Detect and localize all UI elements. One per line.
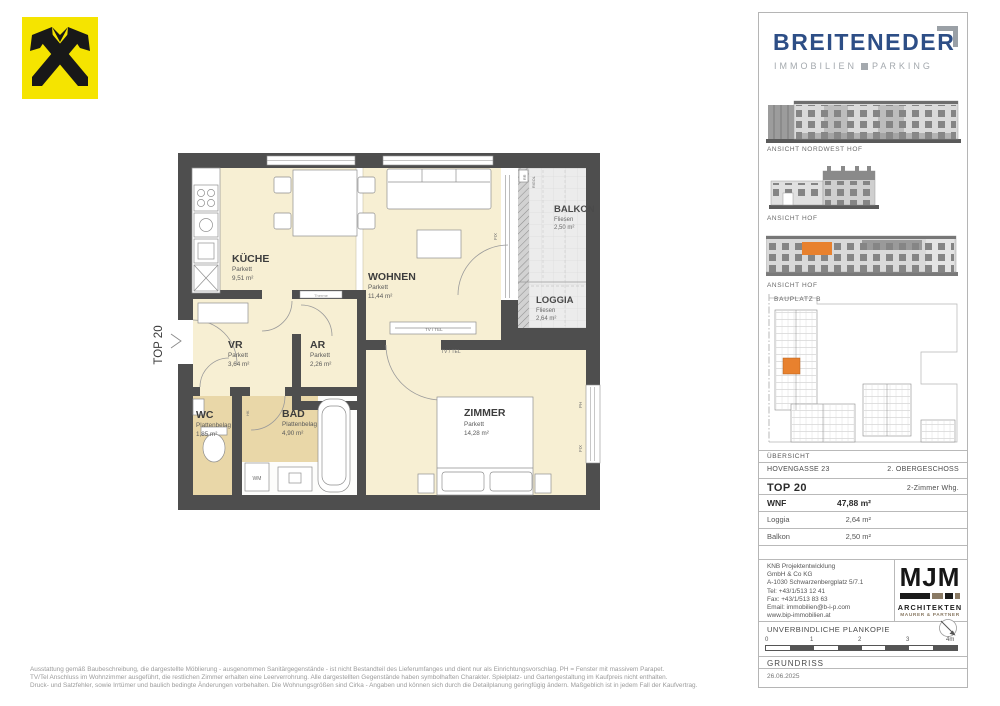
raiffeisen-logo [22,17,98,99]
svg-text:14,28 m²: 14,28 m² [464,430,489,437]
svg-text:Parkett: Parkett [232,266,252,273]
contact-line: Fax: +43/1/513 83 63 [767,596,863,604]
divider [759,545,967,546]
square-separator-icon [861,63,868,70]
svg-text:Parkett: Parkett [368,284,388,291]
divider [759,511,967,512]
svg-text:Plattenbelag: Plattenbelag [282,421,318,428]
divider [759,478,967,479]
svg-text:4,90 m²: 4,90 m² [282,430,303,437]
elevation-label: ANSICHT NORDWEST HOF [767,146,863,153]
svg-text:BALKON: BALKON [554,204,595,215]
svg-text:LOGGIA: LOGGIA [536,295,574,306]
tv-tel-label: TV / TEL [425,327,443,332]
nightstand [535,474,551,493]
svg-text:WC: WC [196,409,214,421]
area-row-value: 2,50 m² [799,532,871,541]
svg-text:ZIMMER: ZIMMER [464,407,506,419]
area-row-label: Balkon [767,532,790,541]
mjm-logo-bar-icon [900,593,960,600]
brand-tagline: IMMOBILIEN PARKING [774,61,933,71]
divider [759,450,967,451]
tv-tel-label: TV / TEL [441,349,461,355]
svg-text:Plattenbelag: Plattenbelag [196,422,232,429]
svg-text:2,50 m²: 2,50 m² [554,225,574,231]
contact-line: Email: immobilien@b-i-p.com [767,604,863,612]
developer-contact: KNB Projektentwicklung GmbH & Co KG A-10… [767,563,863,620]
area-row-label: Loggia [767,515,790,524]
svg-text:11,44 m²: 11,44 m² [368,293,392,300]
sofa [387,169,491,209]
stove-icon [194,185,218,211]
elevation-label: ANSICHT HOF [767,215,818,222]
contact-line: A-1030 Schwarzenbergplatz 5/7.1 [767,579,863,587]
unit-title: TOP 20 [767,482,807,494]
tagline-immobilien: IMMOBILIEN [774,61,857,71]
oven-icon [194,239,218,263]
unit-highlight-elevation [802,242,832,255]
architects-name: ARCHITEKTEN [894,603,966,612]
svg-text:9,51 m²: 9,51 m² [232,275,253,282]
contact-line: KNB Projektentwicklung [767,563,863,571]
ph-label: PH [578,402,583,408]
svg-text:3,64 m²: 3,64 m² [228,361,249,368]
unit-tag: TOP 20 [153,325,181,364]
elevation-label: ANSICHT HOF [767,282,818,289]
divider [759,559,967,560]
bathtub-icon [318,399,350,492]
area-row-value: 47,88 m² [799,498,871,508]
svg-text:Parkett: Parkett [310,352,330,359]
chair [358,213,375,229]
scale-tick: 0 [765,637,768,643]
svg-text:BAD: BAD [282,408,305,420]
svg-text:Fliesen: Fliesen [536,308,555,314]
hk-label: HK [245,410,250,416]
coffee-table [417,230,461,258]
bathroom-sink-icon [278,467,312,491]
divider [759,528,967,529]
breiteneder-logo-text: BREITENEDER [773,29,955,56]
scale-tick: 3 [906,637,909,643]
unit-label: TOP 20 [153,325,165,364]
svg-text:Parkett: Parkett [228,352,248,359]
floor-plan: KÜCHE Parkett 9,51 m² WOHNEN Parkett 11,… [145,140,615,520]
elevation-hof-2-highlighted [766,230,958,280]
disclaimer-line: Druck- und Satzfehler, sowie Irrtümer un… [30,682,840,690]
svg-text:KÜCHE: KÜCHE [232,252,269,265]
site-plan: BAUPLATZ B [761,292,965,446]
divider [759,462,967,463]
svg-text:AR: AR [310,339,326,351]
chair [274,177,291,193]
scale-tick: 4m [946,637,954,643]
unit-highlight-siteplan [783,358,800,374]
svg-text:WOHNEN: WOHNEN [368,271,416,283]
info-panel: BREITENEDER IMMOBILIEN PARKING ANSICHT N… [758,12,968,688]
toilet-icon [203,434,225,462]
fix-label: FIX [578,445,583,452]
contact-line: GmbH & Co KG [767,571,863,579]
dining-table [293,170,357,236]
disclaimer: Ausstattung gemäß Baubeschreibung, die d… [30,666,840,690]
storey-label: 2. OBERGESCHOSS [859,466,959,473]
svg-text:1,85 m²: 1,85 m² [196,431,217,438]
svg-text:2,64 m²: 2,64 m² [536,316,556,322]
divider [759,656,967,657]
mjm-logo-text: MJM [894,564,966,590]
disclaimer-line: Ausstattung gemäß Baubeschreibung, die d… [30,666,840,674]
svg-text:2,26 m²: 2,26 m² [310,361,331,368]
therme-label: Therme [314,293,329,298]
area-row-value: 2,64 m² [799,515,871,524]
divider [759,494,967,495]
wardrobe [198,303,248,323]
fix-label: FIX [493,233,498,240]
sink-icon [194,213,218,237]
elevation-nordwest-hof [766,97,961,147]
rigol-label: RIGOL [532,176,536,188]
uebersicht-caption: ÜBERSICHT [767,453,810,460]
balcony-wall-hatch [518,168,529,328]
scale-ticks: 0 1 2 3 4m [765,637,958,645]
plankopie-note: UNVERBINDLICHE PLANKOPIE [767,625,890,634]
pillow [442,472,484,491]
unit-type-label: 2-Zimmer Whg. [859,485,959,492]
svg-text:VR: VR [228,339,243,351]
wm-label: WM [253,476,262,482]
elevation-hof-1 [769,165,881,211]
area-row-label: WNF [767,498,786,508]
siteplan-label: BAUPLATZ B [774,296,821,303]
contact-line: www.bip-immobilien.at [767,612,863,620]
rr-label: RR [523,174,527,180]
pillow [490,472,532,491]
logo-corner-bracket-icon [953,26,958,47]
tagline-parking: PARKING [872,61,933,71]
svg-text:Parkett: Parkett [464,421,484,428]
contact-line: Tel: +43/1/513 12 41 [767,588,863,596]
nightstand [418,474,434,493]
scale-tick: 2 [858,637,861,643]
chair [358,177,375,193]
chair [274,213,291,229]
disclaimer-line: TV/Tel Anschluss im Wohnzimmer ausgeführ… [30,674,840,682]
scale-bar [765,645,958,651]
address-label: HOVENGASSE 23 [767,466,830,473]
scale-tick: 1 [810,637,813,643]
svg-text:Fliesen: Fliesen [554,217,573,223]
